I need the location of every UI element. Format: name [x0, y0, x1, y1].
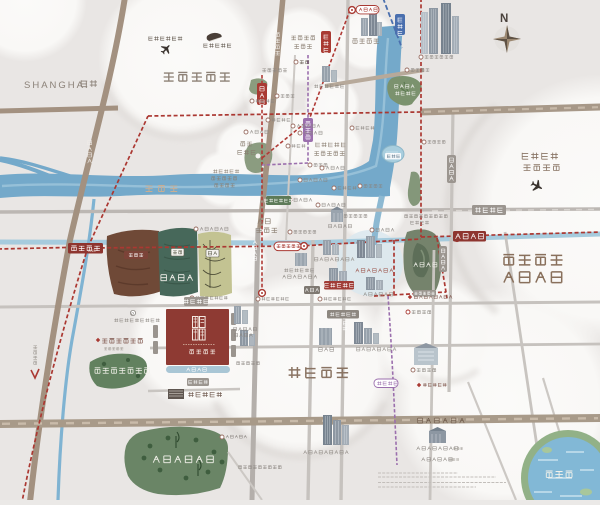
svg-text:N: N — [500, 13, 508, 25]
svg-text:G15: G15 — [88, 248, 96, 253]
svg-text:P: P — [131, 311, 134, 316]
svg-text:SHANGHAI: SHANGHAI — [24, 80, 90, 91]
